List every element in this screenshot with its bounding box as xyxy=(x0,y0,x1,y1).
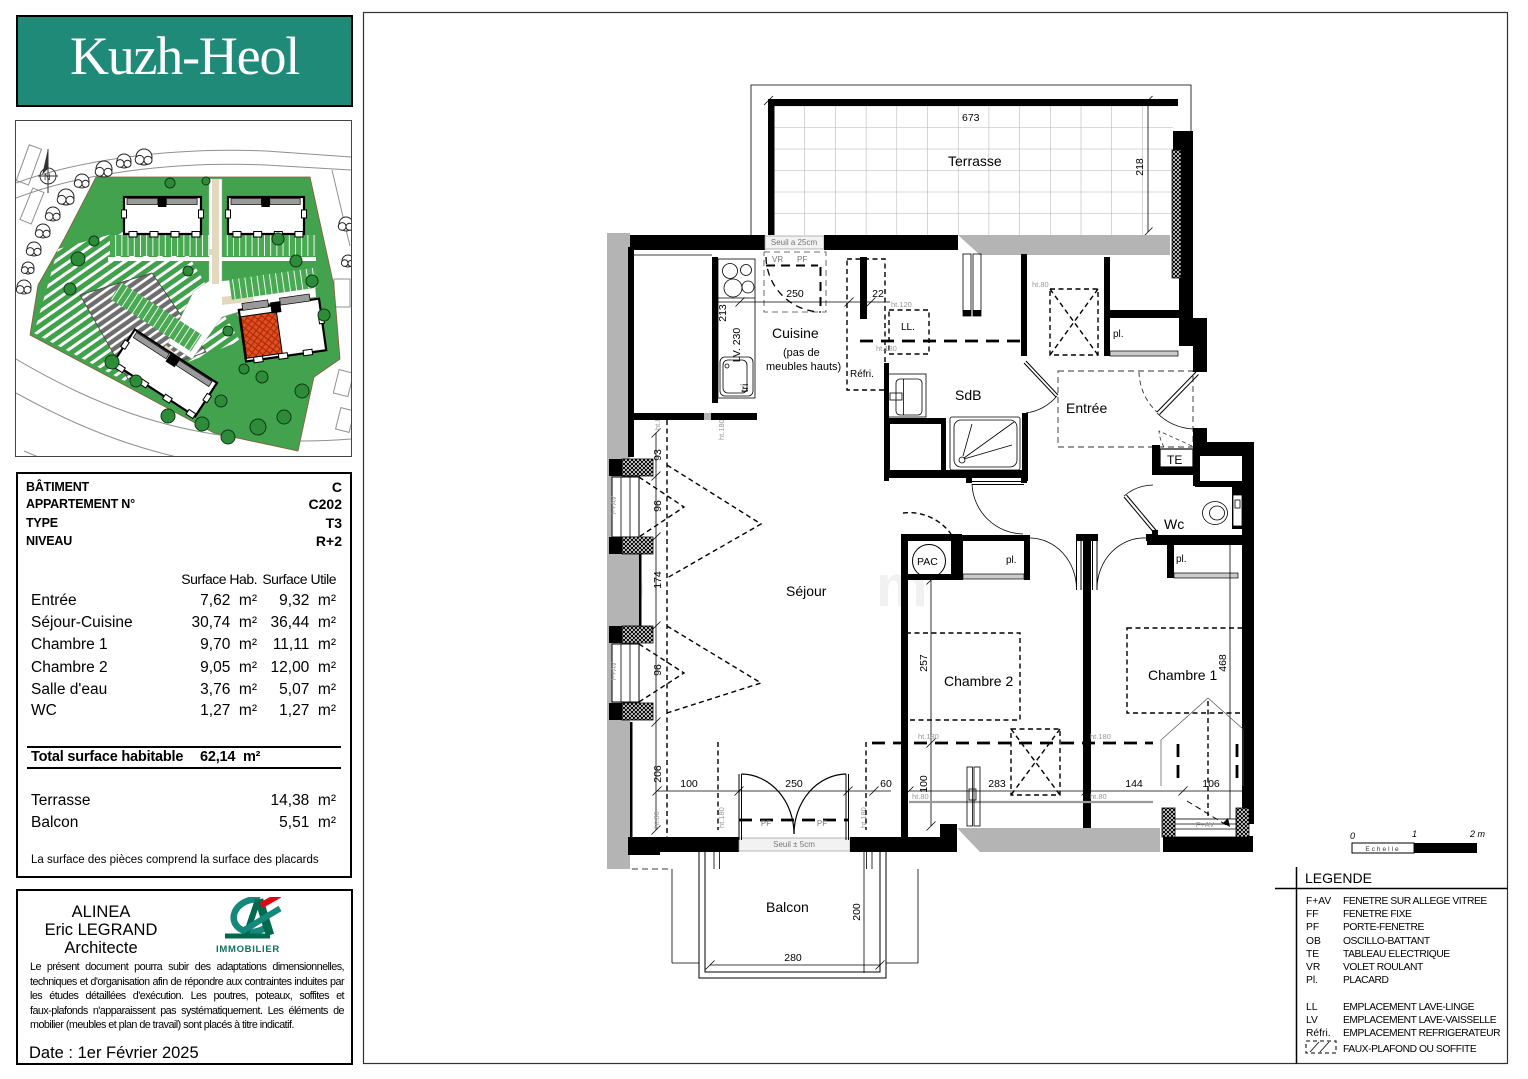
svg-text:60: 60 xyxy=(880,778,892,790)
svg-text:468: 468 xyxy=(1217,654,1229,672)
svg-text:ht.80: ht.80 xyxy=(1032,280,1049,289)
svg-text:LL: LL xyxy=(1306,1002,1318,1013)
svg-text:ht.180: ht.180 xyxy=(1090,732,1111,741)
svg-text:N: N xyxy=(44,172,51,182)
svg-text:PF: PF xyxy=(1306,922,1319,933)
svg-text:250: 250 xyxy=(785,778,803,790)
svg-text:0: 0 xyxy=(1350,831,1355,841)
svg-text:174: 174 xyxy=(652,571,664,589)
svg-text:213: 213 xyxy=(717,304,729,322)
svg-text:Seuil a 25cm: Seuil a 25cm xyxy=(771,238,818,247)
svg-text:OSCILLO-BATTANT: OSCILLO-BATTANT xyxy=(1343,936,1431,947)
svg-text:Séjour: Séjour xyxy=(786,583,827,599)
svg-text:PF: PF xyxy=(797,255,807,264)
svg-text:ht.180: ht.180 xyxy=(717,419,726,440)
svg-text:22: 22 xyxy=(872,288,884,300)
svg-text:IMMOBILIER: IMMOBILIER xyxy=(216,944,280,954)
svg-text:673: 673 xyxy=(962,112,980,124)
svg-text:Balcon: Balcon xyxy=(766,899,809,915)
svg-text:EMPLACEMENT LAVE-LINGE: EMPLACEMENT LAVE-LINGE xyxy=(1343,1002,1475,1013)
svg-text:FENETRE FIXE: FENETRE FIXE xyxy=(1343,909,1412,920)
svg-text:F+AV: F+AV xyxy=(609,496,618,514)
svg-text:EMPLACEMENT REFRIGERATEUR: EMPLACEMENT REFRIGERATEUR xyxy=(1343,1028,1500,1039)
svg-text:FAUX-PLAFOND OU SOFFITE: FAUX-PLAFOND OU SOFFITE xyxy=(1343,1044,1477,1055)
svg-text:Chambre 2: Chambre 2 xyxy=(944,673,1013,689)
svg-text:ht.80: ht.80 xyxy=(912,792,929,801)
svg-text:93: 93 xyxy=(652,449,664,461)
svg-text:Réfri.: Réfri. xyxy=(1306,1028,1331,1039)
svg-text:250: 250 xyxy=(786,288,804,300)
svg-text:Wc: Wc xyxy=(1164,516,1184,532)
svg-text:Réfri.: Réfri. xyxy=(850,369,874,380)
svg-text:ht.120: ht.120 xyxy=(891,300,912,309)
svg-text:Entrée: Entrée xyxy=(1066,400,1107,416)
svg-text:Terrasse: Terrasse xyxy=(948,153,1002,169)
svg-text:106: 106 xyxy=(1202,778,1220,790)
svg-text:F+AV: F+AV xyxy=(1196,820,1214,829)
svg-text:PAC: PAC xyxy=(917,556,938,568)
svg-text:283: 283 xyxy=(988,778,1006,790)
svg-text:1: 1 xyxy=(1412,829,1417,839)
svg-text:Echelle: Echelle xyxy=(1365,846,1400,853)
svg-text:Chambre 1: Chambre 1 xyxy=(1148,667,1217,683)
svg-text:SdB: SdB xyxy=(955,387,981,403)
svg-text:PORTE-FENETRE: PORTE-FENETRE xyxy=(1343,922,1425,933)
svg-text:LEGENDE: LEGENDE xyxy=(1305,870,1372,886)
svg-text:257: 257 xyxy=(918,654,930,672)
svg-text:LV: LV xyxy=(1306,1015,1318,1026)
svg-text:Seuil ± 5cm: Seuil ± 5cm xyxy=(773,840,815,849)
svg-text:ht.180: ht.180 xyxy=(876,344,897,353)
svg-text:100: 100 xyxy=(680,778,698,790)
svg-text:96: 96 xyxy=(652,500,664,512)
svg-text:F+AV: F+AV xyxy=(609,662,618,680)
svg-text:Pl.: Pl. xyxy=(1306,975,1318,986)
svg-text:VR: VR xyxy=(1306,962,1320,973)
svg-text:ht.80: ht.80 xyxy=(1090,792,1107,801)
svg-text:OB: OB xyxy=(1306,936,1321,947)
svg-text:96: 96 xyxy=(652,664,664,676)
svg-text:FF: FF xyxy=(1306,909,1319,920)
svg-text:206: 206 xyxy=(652,765,664,783)
svg-text:218: 218 xyxy=(1134,158,1146,176)
svg-text:VR: VR xyxy=(772,255,783,264)
svg-text:TE: TE xyxy=(1306,949,1319,960)
svg-text:TABLEAU ELECTRIQUE: TABLEAU ELECTRIQUE xyxy=(1343,949,1450,960)
svg-text:FENETRE SUR ALLEGE VITREE: FENETRE SUR ALLEGE VITREE xyxy=(1343,896,1487,907)
svg-text:Cuisine: Cuisine xyxy=(772,325,819,341)
svg-text:pl.: pl. xyxy=(1006,555,1017,566)
svg-text:280: 280 xyxy=(784,952,802,964)
svg-text:TE: TE xyxy=(1167,453,1182,467)
svg-text:144: 144 xyxy=(1125,778,1143,790)
svg-text:tri: tri xyxy=(739,384,751,393)
svg-text:(pas de: (pas de xyxy=(783,347,820,359)
svg-text:ht.180: ht.180 xyxy=(918,732,939,741)
svg-text:LL.: LL. xyxy=(901,322,915,333)
svg-text:meubles hauts): meubles hauts) xyxy=(766,361,841,373)
svg-text:pl.: pl. xyxy=(1176,554,1187,565)
svg-text:2 m: 2 m xyxy=(1469,829,1486,839)
svg-text:F+AV: F+AV xyxy=(1306,896,1331,907)
svg-text:PF: PF xyxy=(761,819,771,828)
svg-text:100: 100 xyxy=(918,775,930,793)
svg-text:PLACARD: PLACARD xyxy=(1343,975,1389,986)
svg-text:pl.: pl. xyxy=(1113,329,1124,340)
svg-text:200: 200 xyxy=(851,903,863,921)
svg-text:VOLET ROULANT: VOLET ROULANT xyxy=(1343,962,1424,973)
svg-text:ht.80: ht.80 xyxy=(652,811,661,828)
svg-text:PF: PF xyxy=(817,819,827,828)
svg-text:EMPLACEMENT LAVE-VAISSELLE: EMPLACEMENT LAVE-VAISSELLE xyxy=(1343,1015,1497,1026)
